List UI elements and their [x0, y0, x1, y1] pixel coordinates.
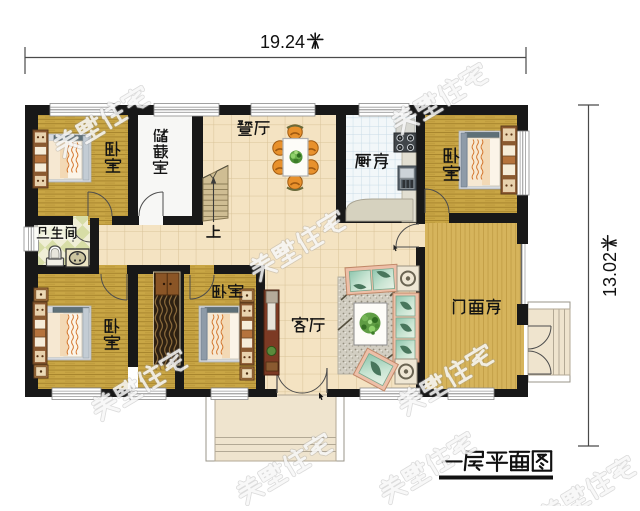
svg-text:19.24: 19.24 [260, 32, 305, 52]
svg-text:13.02: 13.02 [600, 252, 620, 297]
